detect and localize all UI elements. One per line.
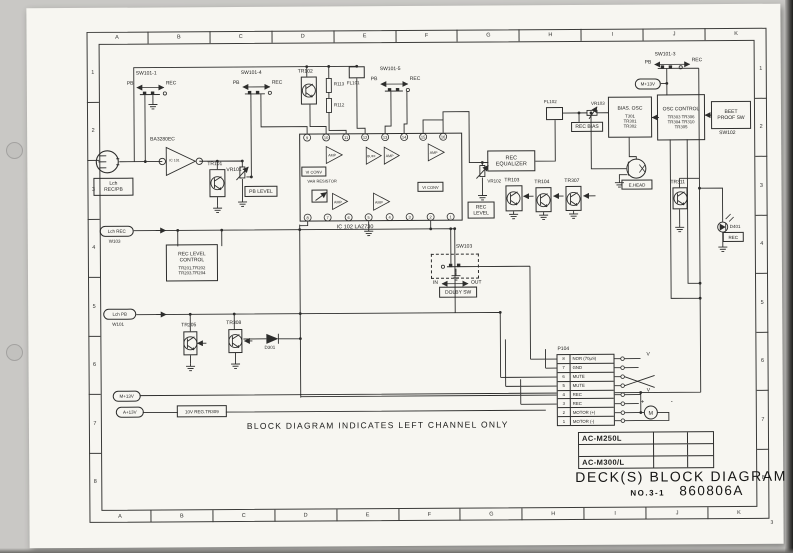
label-sw101-1: SW101-1 [136,72,157,78]
connector-row: 5MUTE [558,380,614,389]
label-pb: PB [645,60,652,66]
connector-row: 4REC [558,389,614,398]
vi-conv-box-1: VI CONV [301,166,326,176]
pin-number: 6 [558,373,571,381]
note-text: BLOCK DIAGRAM INDICATES LEFT CHANNEL ONL… [247,419,509,431]
rec-level-line2: LEVEL [473,210,489,216]
pin-number: 7 [558,364,571,372]
a13v-label: A+13V [123,410,137,415]
jack-label-line2: REC/PB [104,187,123,193]
osc-control-parts: TR305 [675,124,688,129]
reg-tr309-box: 10V REG.TR309 [177,405,227,417]
label-rec: REC [166,81,177,87]
scan-edge-right [785,0,793,553]
model-name [579,444,653,455]
connector-table: 8NOR (70µS) 7GND 6MUTE 5MUTE 4REC 3REC 2… [556,354,614,426]
label-vr102: VR102 [487,178,501,183]
title-block-table: AC-M250L AC-M300/L [578,431,714,469]
dolby-sw-dashed-box [431,254,479,279]
jack-icon [96,151,118,173]
label-pb: PB [127,82,134,88]
a13v-oval: A+13V [116,407,144,418]
label-out: OUT [471,281,482,287]
rec-level-box: REC LEVEL [468,201,495,218]
label-w101: W101 [112,322,124,327]
osc-control-box: OSC CONTROL TR303 TR306 TR304 TR310 TR30… [657,94,705,140]
dolby-sw-box: DOLBY SW [439,287,477,298]
fl101-box [349,66,365,78]
e-head-box: E.HEAD [621,179,652,189]
label-vr101: VR101 [226,168,241,174]
rlc-line2: CONTROL [180,257,204,263]
jack-label-box: Lch REC/PB [93,178,133,196]
pin-number: 3 [558,399,571,407]
label-sw101-4: SW101-4 [241,71,262,77]
rlc-line4: TR203,TR204 [178,270,205,275]
model-name: AC-M300/L [579,456,653,467]
bias-osc-box: BIAS. OSC T301 TR301 TR302 [608,96,652,137]
label-ic102: IC 102 LA2730 [337,224,374,231]
label-w103: W103 [109,239,121,244]
title-block-cell [653,456,687,467]
label-ic101-part: BA3280EC [150,137,175,143]
tr308-box [228,329,242,353]
label-rec: REC [692,58,703,64]
dolby-sw-label: DOLBY SW [445,289,471,295]
scan-edge-bottom [0,548,793,553]
v-mark: V [647,389,650,395]
pin-number: 1 [558,417,571,425]
label-tr308: TR308 [226,321,241,327]
model-name: AC-M250L [579,432,653,443]
connector-row: 7GND [558,363,614,372]
e-head-label: E.HEAD [629,182,646,187]
title-block-cell [687,444,713,455]
lch-rec-label: Lch REC [108,229,126,234]
label-tr104: TR104 [534,180,549,186]
tr103-box [505,185,522,211]
pin-number: 2 [558,408,571,416]
rec-eq-line2: EQUALIZER [496,161,527,167]
svg-text:M: M [649,411,654,417]
tr311-box [672,187,687,209]
connector-row: 3REC [558,398,614,407]
reg-tr309-label: 10V REG.TR309 [185,409,219,414]
label-sw101-3: SW101-3 [655,52,676,58]
erase-head-icon [627,159,646,178]
label-sw102: SW102 [719,131,735,137]
v-mark: V [646,353,649,359]
label-tr205: TR205 [181,323,196,329]
ic102-box [299,133,463,222]
title-block-cell [653,444,687,455]
tr102-box [301,77,317,105]
drawing-sheet: ABCDEFGHIJK ABCDEFGHIJK 12345678 1234567… [26,4,783,549]
m13v-label: M+13V [120,394,134,399]
title-block-cell [687,432,713,443]
label-ic101: IC 101 [169,158,179,162]
beat-proof-sw-box: BEET PROOF SW [711,101,751,129]
pb-level-label: PB LEVEL [249,188,273,194]
lch-rec-oval: Lch REC [100,226,134,237]
scanned-schematic-page: ABCDEFGHIJK ABCDEFGHIJK 12345678 1234567… [0,0,793,553]
motor-icon: M [644,406,657,419]
label-tr101: TR101 [207,162,222,168]
label-tr311: TR311 [670,180,685,186]
fl102-box [546,107,563,120]
pb-level-box: PB LEVEL [244,186,277,197]
label-tr103: TR103 [504,178,519,184]
connector-row: 2MOTOR (+) [558,407,614,416]
vi-conv-label: VI CONV [306,169,322,174]
beat-proof-line2: PROOF SW [717,115,744,121]
connector-row: 6MUTE [558,371,614,380]
motor-plus: + [641,400,645,407]
title-block-row [579,443,713,456]
connector-name: P104 [557,347,569,353]
label-sw101-5: SW101-5 [380,67,401,73]
lch-pb-oval: Lch PB [103,309,136,320]
osc-control-title: OSC CONTROL [663,106,700,112]
label-var-resistor: VAR RESISTOR [307,179,336,184]
title-block-row: AC-M250L [579,432,713,444]
label-pb: PB [233,81,240,87]
pin-number: 8 [557,355,570,363]
m13v-oval-bottom: M+13V [113,391,141,402]
rec-bias-box: REC BIAS [571,122,603,132]
rec-led-label: REC [728,234,738,239]
tr101-box [209,169,225,197]
label-r112: R112 [334,102,344,107]
label-fl102: FL102 [544,99,557,104]
connector-contacts [621,357,625,423]
bias-osc-part: TR302 [624,124,637,129]
rec-bias-label: REC BIAS [575,124,598,130]
vi-conv-box-2: VI CONV [417,182,443,192]
diode-d301-icon [266,334,278,344]
tr205-box [183,331,197,355]
pin-number: 4 [558,390,571,398]
connector-row: 1MOTOR (-) [558,416,614,425]
m13v-oval-top: M+13V [635,78,661,89]
title-block-row: AC-M300/L [579,455,713,468]
label-fl101: FL101 [347,80,360,85]
label-pb: PB [371,77,378,83]
rec-equalizer-box: REC EQUALIZER [487,150,535,171]
label-in: IN [433,281,438,287]
document-number: 860806A [679,483,744,498]
label-vr103: VR103 [591,101,605,106]
title-block-cell [687,456,713,467]
tr104-box [535,187,551,212]
m13v-label: M+13V [641,81,655,86]
lch-pb-label: Lch PB [112,312,127,317]
label-rec: REC [272,81,283,87]
var-resistor-box [311,189,327,202]
label-sw103: SW103 [456,245,472,251]
ic101-amp-symbol [159,147,203,175]
rec-level-control-box: REC LEVEL CONTROL TR201,TR202 TR203,TR20… [166,244,218,281]
label-rec: REC [410,77,421,83]
label-r113: R113 [334,81,344,86]
tr307-box [565,186,581,211]
title-block-cell [653,432,687,443]
label-d301: D301 [264,345,275,350]
pin-label: MOTOR (-) [571,417,614,425]
label-tr307: TR307 [564,179,579,185]
vi-conv-label: VI CONV [422,184,438,189]
label-tr102: TR102 [298,70,313,76]
bias-osc-title: BIAS. OSC [617,106,642,112]
label-d401: D401 [730,224,741,229]
drawing-number-label: NO.3-1 [630,488,665,497]
pin-number: 5 [558,382,571,390]
motor-minus: - [671,399,673,406]
rec-led-box: REC [723,232,744,242]
